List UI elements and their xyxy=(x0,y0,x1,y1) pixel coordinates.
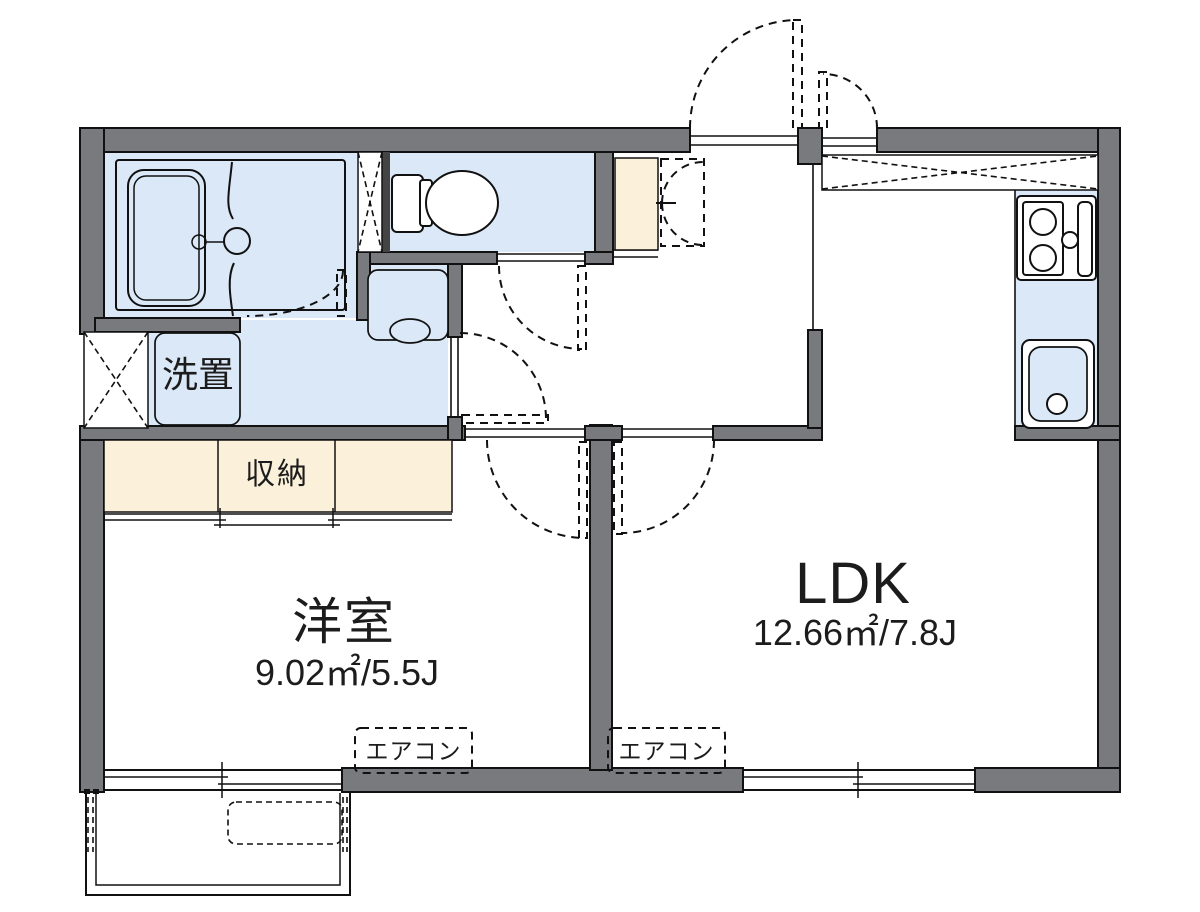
sink-icon xyxy=(1022,340,1094,428)
floor-plan: 洋室 9.02㎡/5.5J LDK 12.66㎡/7.8J 収納 洗置 エアコン… xyxy=(0,0,1200,912)
western-room-name: 洋室 xyxy=(244,596,444,649)
wall-right xyxy=(1098,128,1120,792)
side-door-leaf xyxy=(819,72,827,128)
toilet-door-leaf xyxy=(578,266,586,350)
western-room-door-arc xyxy=(487,440,585,538)
interior-doors xyxy=(460,266,714,538)
shoe-cabinet-icon xyxy=(615,158,658,250)
ldk-door-arc xyxy=(622,440,714,533)
entrance-door-leaf xyxy=(793,20,802,128)
wall-door-jamb xyxy=(585,426,622,440)
wall-hall-south xyxy=(713,426,822,440)
ldk-size: 12.66㎡/7.8J xyxy=(715,614,995,652)
wall-entrance-pier xyxy=(798,128,822,164)
washbasin-icon xyxy=(368,270,448,343)
wall-washroom-east-lower xyxy=(448,417,462,440)
ldk-window xyxy=(743,762,975,798)
ac-outdoor-unit-icon xyxy=(228,802,342,844)
stove-icon xyxy=(1017,196,1096,280)
aircon-label-western: エアコン xyxy=(357,739,470,763)
wall-bath-south xyxy=(95,318,240,332)
western-room-door-leaf xyxy=(579,442,587,538)
wall-hall-east-stub xyxy=(808,330,822,428)
western-room-window xyxy=(104,762,342,798)
closet-label: 収納 xyxy=(227,459,327,491)
floor-plan-drawing xyxy=(0,0,1200,912)
wall-left-upper xyxy=(80,128,104,334)
aircon-label-ldk: エアコン xyxy=(610,739,723,763)
wall-toilet-west-thin xyxy=(382,152,390,252)
wall-room-divider xyxy=(590,425,612,770)
wall-left-lower xyxy=(80,428,104,792)
wall-toilet-south-right xyxy=(585,252,613,264)
wall-bottom-center xyxy=(342,768,743,792)
toilet-icon xyxy=(392,171,498,235)
laundry-label: 洗置 xyxy=(156,356,240,394)
wall-top-left xyxy=(80,128,690,152)
wall-top-right xyxy=(877,128,1120,152)
wall-toilet-south-left xyxy=(358,252,497,264)
entrance-door-arc xyxy=(690,20,798,128)
ldk-name: LDK xyxy=(753,554,953,615)
balcony xyxy=(84,789,350,895)
western-room-size: 9.02㎡/5.5J xyxy=(227,654,467,692)
washroom-door-leaf xyxy=(462,415,548,423)
ldk-door-leaf xyxy=(614,442,622,534)
washroom-door-arc xyxy=(460,333,546,419)
side-door-arc xyxy=(823,74,877,128)
wall-toilet-east xyxy=(595,152,613,252)
pipe-space-icon xyxy=(84,332,148,428)
wall-bottom-right xyxy=(975,768,1120,792)
toilet-door-arc xyxy=(499,266,582,349)
